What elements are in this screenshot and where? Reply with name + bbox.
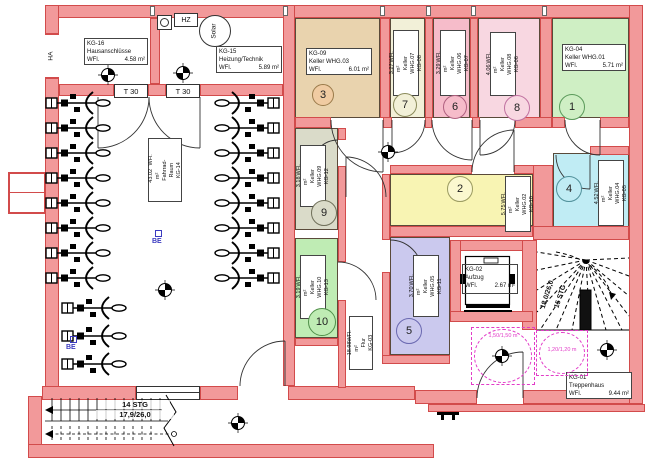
- wall-junction-mark: [542, 6, 547, 16]
- room-label-kg14: 43.02 m²WFl. Fahrrad-RaumKG-14: [148, 138, 182, 202]
- stairs-left-dim-label: 17,9/26,0: [96, 410, 174, 419]
- wall: [288, 386, 415, 400]
- bicycle-icons: [46, 92, 279, 375]
- be-marker-label: BE: [152, 238, 162, 245]
- solar-label: Solar: [211, 23, 219, 38]
- unit-number-1: 1: [559, 94, 585, 120]
- wall: [428, 404, 645, 412]
- unit-number-3: 3: [312, 84, 334, 106]
- wall: [45, 78, 59, 388]
- wall-junction-mark: [150, 6, 155, 16]
- be-marker-label: BE: [66, 344, 76, 351]
- wall: [338, 128, 346, 140]
- clearance-label-120: 1,20/1,20 m: [541, 347, 583, 353]
- unit-number-7: 7: [393, 93, 417, 117]
- wall: [59, 84, 114, 96]
- unit-number-10: 10: [308, 308, 336, 336]
- unit-number-6: 6: [443, 95, 467, 119]
- room-label-kg15: KG-15Heizung/Technik WFl.5.89 m²: [216, 46, 282, 73]
- window-ha-opening: HA: [45, 34, 59, 78]
- wall-junction-mark: [380, 6, 385, 16]
- wall: [45, 5, 59, 34]
- lightwell: [8, 172, 46, 214]
- wall: [283, 5, 295, 386]
- room-label-kg10: 5.75 m²WFl. Keller WHG.02KG-10: [505, 176, 531, 232]
- unit-number-4: 4: [556, 176, 582, 202]
- wall: [200, 84, 283, 96]
- wall: [540, 18, 552, 118]
- room-label-kg12: 3.18 m²WFl. Keller WHG.09KG-12: [300, 145, 326, 207]
- wall: [28, 444, 434, 458]
- elevator-shaft-wall: [450, 240, 533, 251]
- wall: [382, 355, 450, 364]
- t30-door-tag: T 30: [114, 84, 148, 98]
- wall: [382, 174, 390, 240]
- wall: [390, 165, 472, 174]
- window: [136, 386, 200, 400]
- room-label-kg08: 3.27 m²WFl. Keller WHG.07KG-08: [393, 30, 419, 96]
- clearance-circle-120: [539, 332, 585, 374]
- wall: [415, 390, 477, 404]
- wall: [338, 166, 346, 262]
- wall: [552, 117, 565, 128]
- wall: [382, 272, 390, 364]
- wall: [472, 117, 480, 128]
- unit-number-2: 2: [447, 176, 473, 202]
- elevator-shaft-wall: [450, 240, 461, 322]
- wall: [590, 146, 629, 155]
- wall-junction-mark: [283, 6, 288, 16]
- wall: [470, 18, 478, 118]
- wall: [148, 84, 166, 96]
- stairs-left-steps-label: 14 STG: [100, 400, 170, 409]
- wall-junction-mark: [471, 6, 476, 16]
- room-label-kg16: KG-16Hausanschlüsse WFl.4.58 m²: [84, 38, 148, 65]
- unit-number-8: 8: [504, 95, 530, 121]
- be-marker-icon: [70, 336, 77, 343]
- wall: [42, 386, 136, 400]
- wall: [600, 117, 629, 128]
- room-label-kg07: 3.29 m²WFl. Keller WHG.06KG-07: [440, 30, 466, 96]
- t30-door-tag: T 30: [166, 84, 200, 98]
- wall: [383, 117, 392, 128]
- elevator-shaft-wall: [450, 311, 533, 322]
- room-label-kg03-flur: 18.98 m²WFl. FlurKG-03: [349, 316, 373, 370]
- wall: [533, 165, 553, 228]
- wall-junction-mark: [426, 6, 431, 16]
- wall: [425, 18, 433, 118]
- wall: [200, 386, 238, 400]
- wall: [338, 300, 346, 388]
- wall: [150, 18, 160, 84]
- room-label-kg11: 3.70 m²WFl. Keller WHG.05KG-11: [413, 255, 439, 317]
- wall: [533, 226, 629, 240]
- wall: [45, 5, 643, 18]
- hz-tag: HZ: [174, 13, 198, 27]
- wall: [425, 117, 432, 128]
- wall: [295, 117, 331, 128]
- room-label-kg02: KG-02Aufzug WFl.2.67 m²: [462, 264, 518, 294]
- be-marker-icon: [155, 230, 162, 237]
- unit-number-5: 5: [396, 318, 422, 344]
- room-label-kg06: 4.06 m²WFl. Keller WHG.08KG-06: [490, 32, 516, 96]
- basement-floor-plan: HA: [0, 0, 650, 469]
- room-label-kg01: KG-01Treppenhaus WFl.9.44 m²: [566, 372, 632, 399]
- solar-tank: Solar: [199, 15, 231, 47]
- wall: [295, 338, 338, 346]
- ha-label: HA: [48, 51, 56, 60]
- clearance-label-150: 1,50/1,50 m: [478, 333, 528, 339]
- unit-number-9: 9: [311, 200, 337, 226]
- wall: [629, 5, 643, 404]
- room-label-kg09: KG-09Keller WHG.03 WFl.6.01 m²: [306, 48, 372, 75]
- room-label-kg04: KG-04Keller WHG.01 WFl.5.71 m²: [562, 44, 626, 71]
- room-label-kg05: 4.52 m²WFl. Keller WHG.04KG-05: [598, 160, 624, 226]
- exterior-grate-icon: [437, 412, 459, 420]
